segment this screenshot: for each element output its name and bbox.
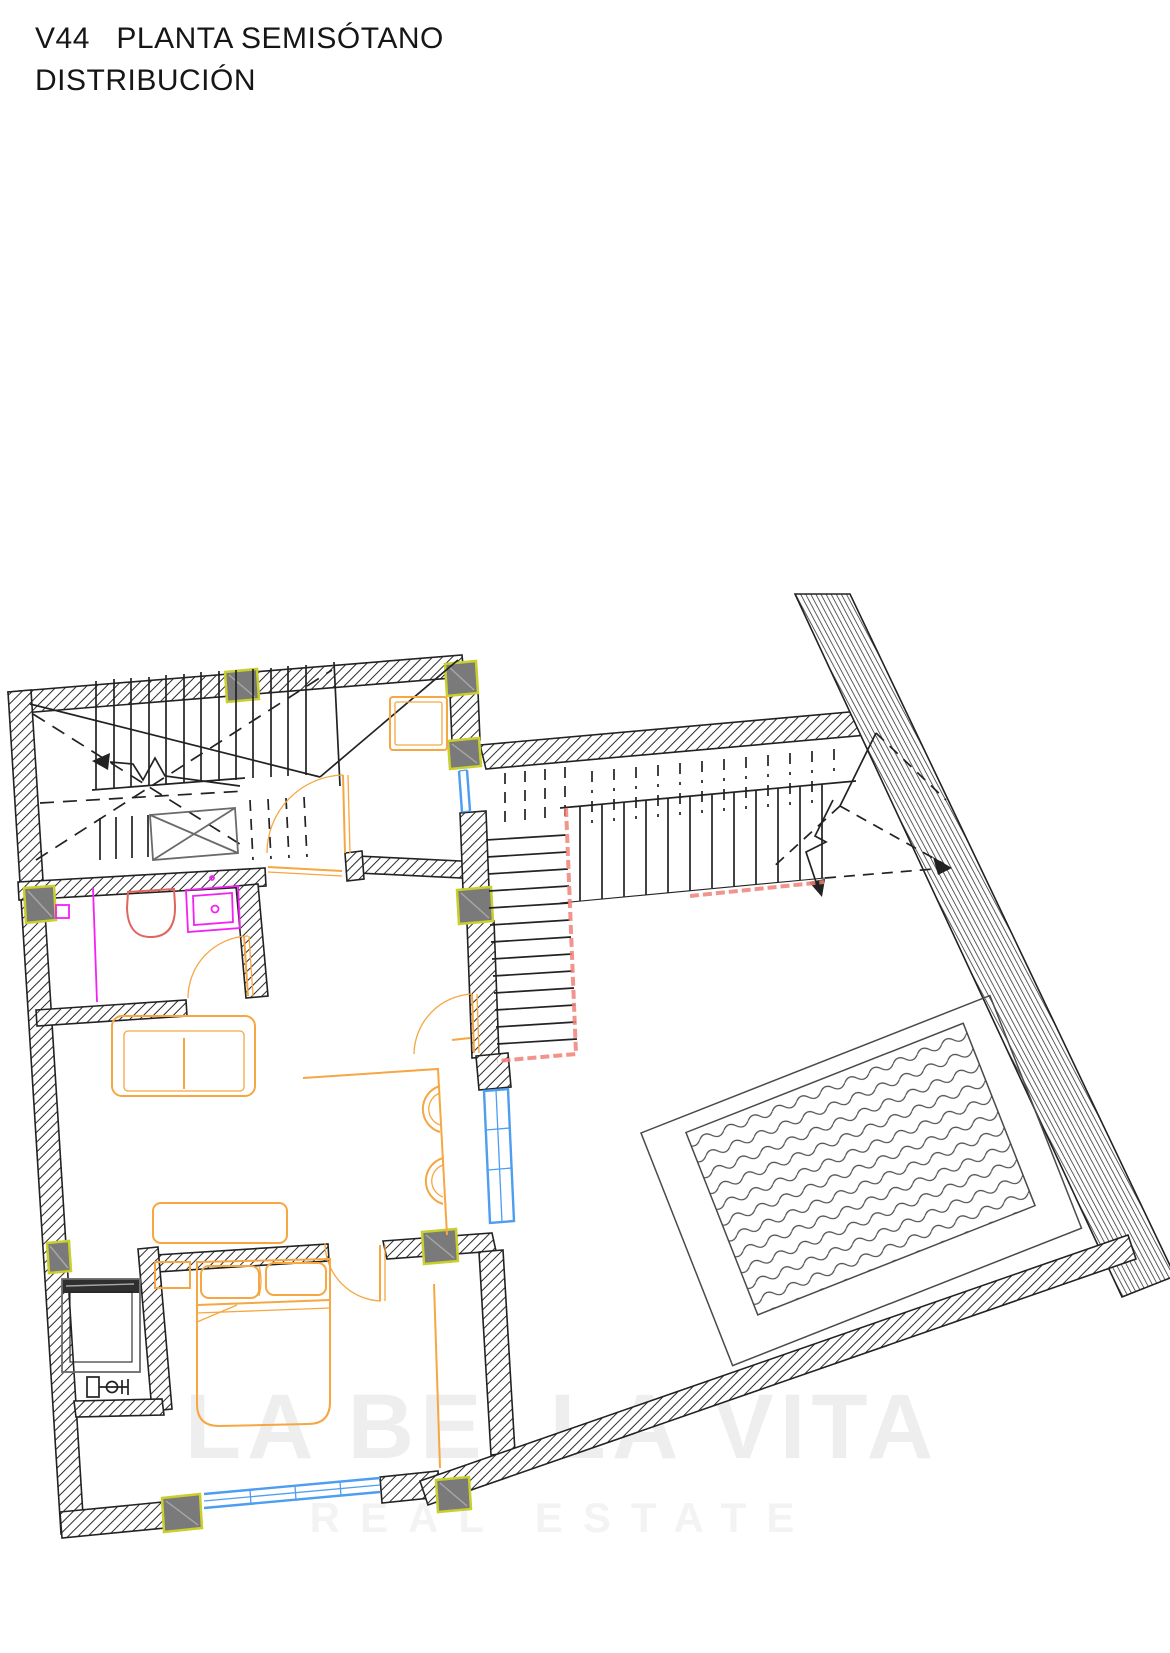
shower-screen xyxy=(93,888,97,1002)
floorplan-canvas: LA BELLA VITA REAL ESTATE xyxy=(0,0,1170,1653)
sofa xyxy=(112,1016,255,1096)
column xyxy=(24,886,56,923)
title-line1: V44 PLANTA SEMISÓTANO xyxy=(35,22,444,55)
door-bedroom xyxy=(325,1243,385,1301)
column xyxy=(436,1477,471,1512)
watermark-line1: LA BELLA VITA xyxy=(185,1376,939,1478)
stair-treads-solid xyxy=(580,784,822,901)
stair-treads xyxy=(486,835,577,1044)
wall-bedroom-top-left xyxy=(140,1244,329,1273)
title-line2: DISTRIBUCIÓN xyxy=(35,64,256,97)
drawing-title: V44 PLANTA SEMISÓTANO DISTRIBUCIÓN xyxy=(35,22,444,97)
column xyxy=(422,1229,458,1264)
wall-smallroom-a xyxy=(450,692,480,742)
vanity-counter xyxy=(303,1069,447,1235)
toilet xyxy=(127,889,175,937)
stair-treads-dashed xyxy=(505,767,565,830)
pool-water xyxy=(686,1023,1035,1315)
machine-inner xyxy=(70,1292,132,1362)
glazed-wall-center xyxy=(484,1089,514,1223)
window-top xyxy=(459,770,470,812)
stair-flight-separator xyxy=(560,781,856,808)
wall-utility-bottom xyxy=(74,1399,164,1417)
wall-bathroom-bottom xyxy=(36,1000,187,1026)
stair-bottom-line xyxy=(560,878,825,903)
column xyxy=(448,738,481,769)
connecting-stair xyxy=(486,767,577,1061)
column xyxy=(457,887,493,924)
column xyxy=(162,1494,202,1532)
column xyxy=(225,669,259,702)
door-corridor xyxy=(267,775,350,876)
stair-flight-line xyxy=(30,704,320,777)
pump xyxy=(87,1377,128,1397)
wall-left xyxy=(8,690,84,1534)
shower-drain xyxy=(56,905,69,918)
wall-smallroom-b xyxy=(460,811,489,890)
wall-rightroom-top xyxy=(480,710,878,769)
floorplan-page: LA BELLA VITA REAL ESTATE xyxy=(0,0,1170,1653)
column xyxy=(47,1241,71,1273)
cabinet xyxy=(390,697,447,750)
stair-landing-line-dashed xyxy=(40,791,245,803)
wall-door-jamb xyxy=(345,851,364,881)
sideboard xyxy=(153,1203,287,1243)
